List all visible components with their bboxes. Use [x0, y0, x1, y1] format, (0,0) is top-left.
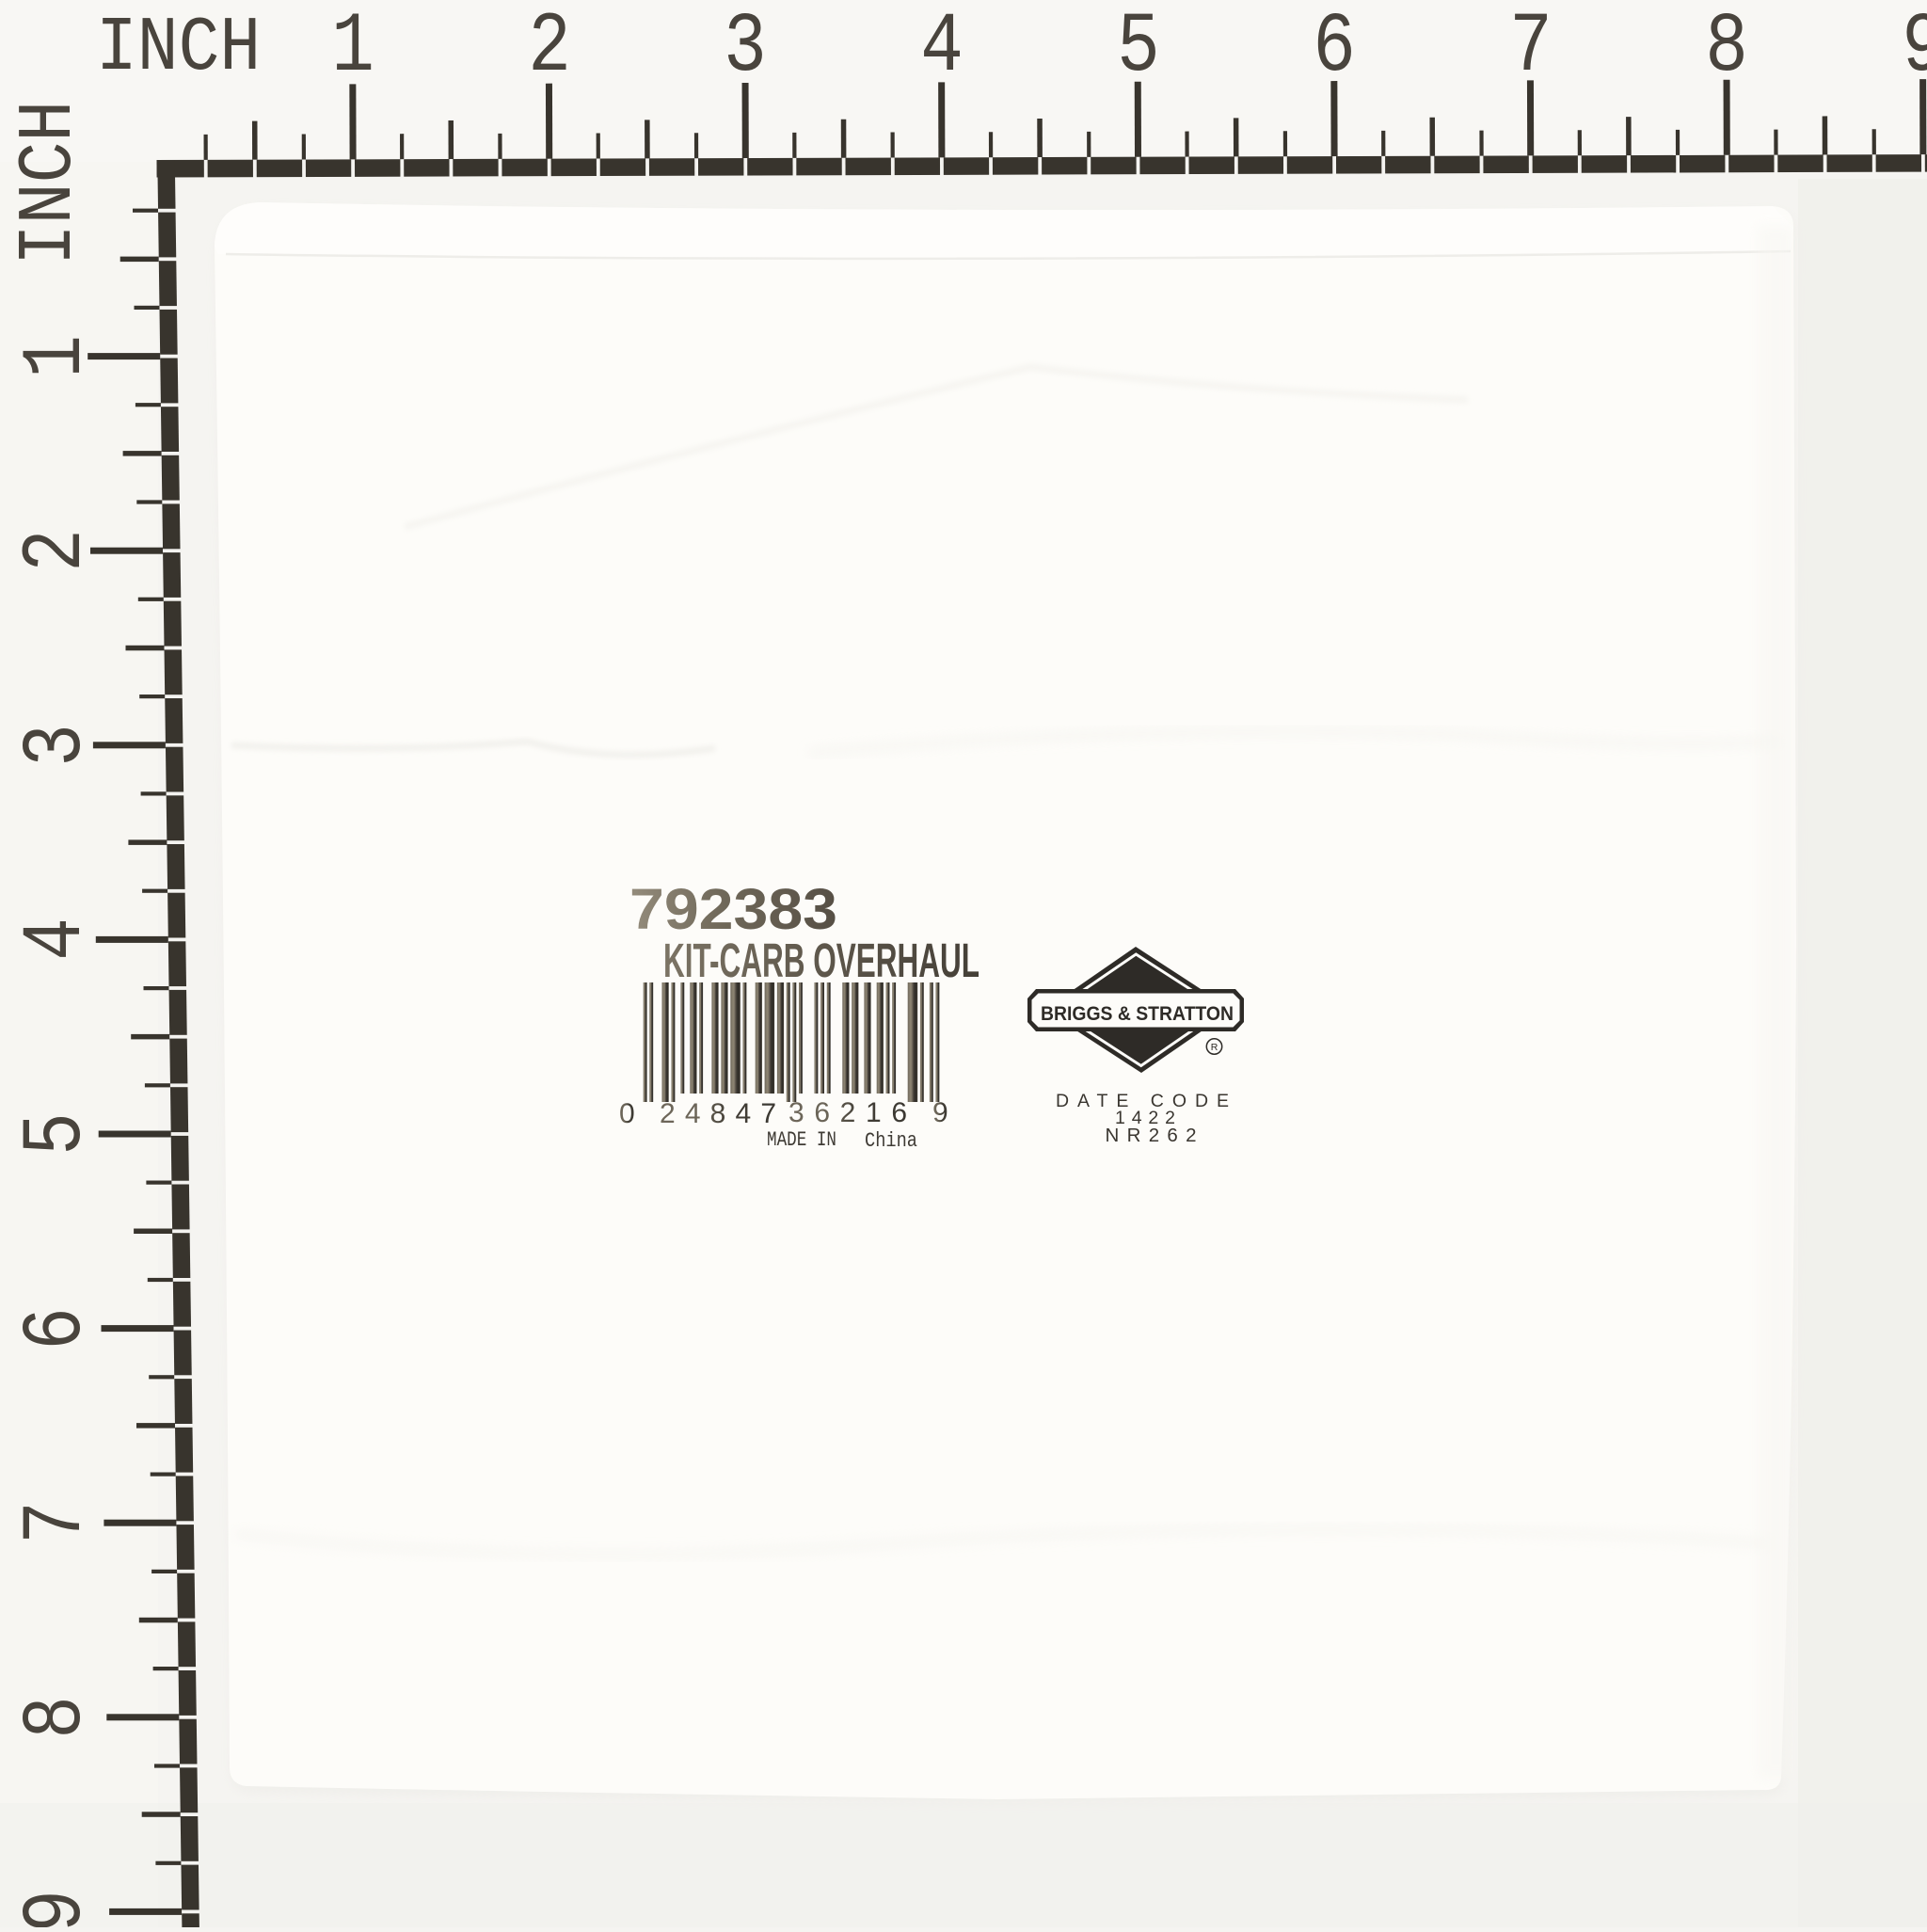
- svg-text:R: R: [1211, 1042, 1218, 1053]
- svg-text:9: 9: [932, 1097, 948, 1128]
- svg-text:0: 0: [619, 1098, 635, 1129]
- svg-text:3: 3: [9, 724, 104, 767]
- svg-text:5: 5: [9, 1112, 104, 1156]
- svg-text:INCH: INCH: [96, 5, 261, 92]
- svg-text:China: China: [865, 1129, 917, 1153]
- svg-text:3: 3: [724, 0, 767, 95]
- svg-text:9: 9: [1902, 0, 1927, 95]
- svg-text:7: 7: [1509, 0, 1553, 95]
- svg-text:KIT-CARB OVERHAUL: KIT-CARB OVERHAUL: [663, 934, 979, 987]
- svg-text:2: 2: [528, 0, 571, 95]
- svg-text:8: 8: [9, 1696, 104, 1739]
- svg-text:1: 1: [9, 335, 104, 378]
- svg-text:8: 8: [1705, 0, 1748, 95]
- svg-text:6: 6: [1313, 0, 1356, 95]
- svg-text:BRIGGS & STRATTON: BRIGGS & STRATTON: [1041, 1002, 1234, 1025]
- svg-text:2: 2: [9, 529, 104, 572]
- svg-text:1: 1: [331, 0, 374, 95]
- svg-text:9: 9: [9, 1890, 104, 1927]
- svg-text:5: 5: [1117, 0, 1160, 95]
- svg-text:4: 4: [9, 918, 104, 961]
- svg-text:7: 7: [9, 1501, 104, 1544]
- svg-text:792383: 792383: [629, 877, 837, 941]
- svg-text:INCH: INCH: [6, 101, 93, 265]
- svg-text:6: 6: [9, 1307, 104, 1350]
- svg-text:MADE IN: MADE IN: [767, 1128, 836, 1152]
- svg-text:4: 4: [920, 0, 963, 95]
